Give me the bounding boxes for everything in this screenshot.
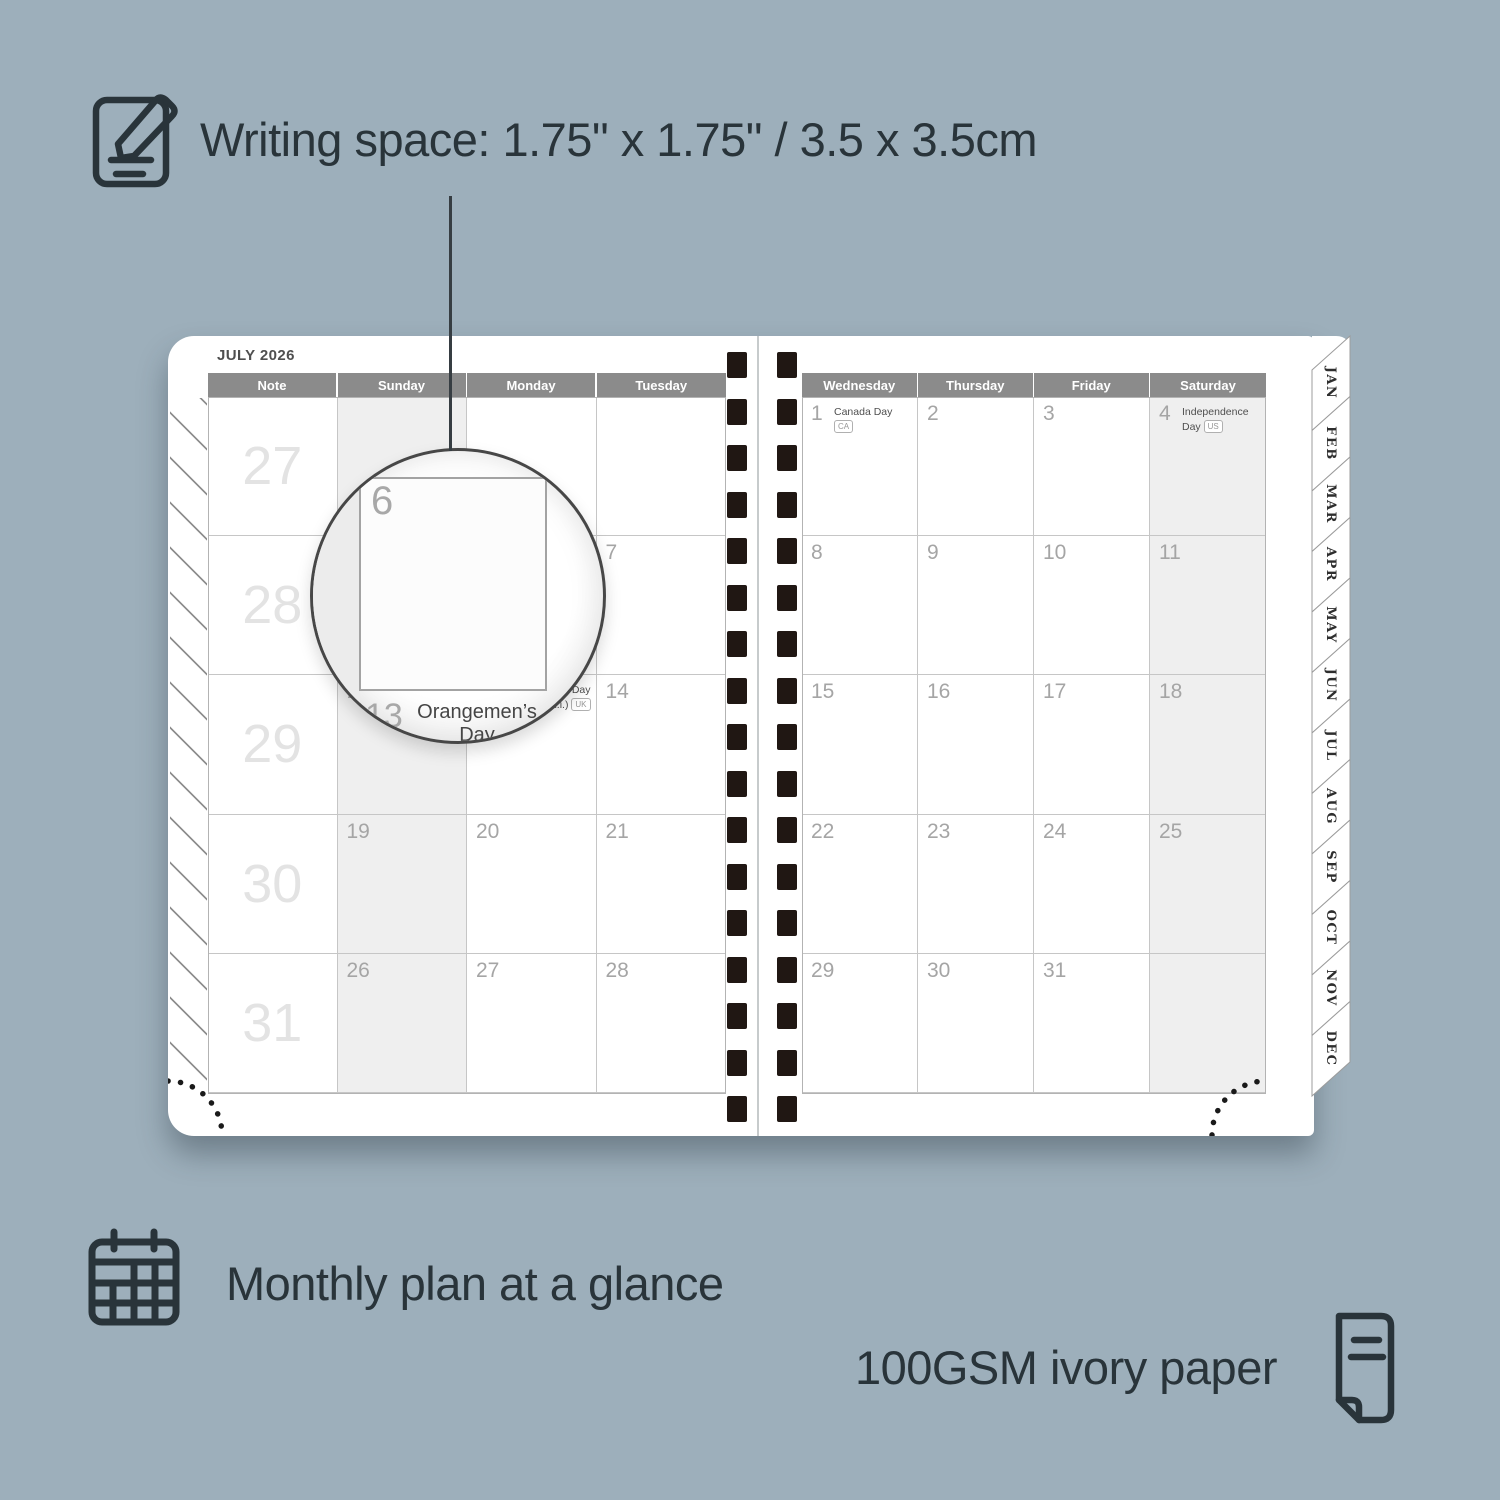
date-number-26: 26 xyxy=(347,959,370,983)
header-left-monday: Monday xyxy=(467,373,595,397)
month-tab-jul xyxy=(1312,699,1350,794)
binding-hole xyxy=(777,771,797,797)
binding-hole xyxy=(777,910,797,936)
binding-hole xyxy=(777,1003,797,1029)
month-tab-label-feb: FEB xyxy=(1323,426,1338,461)
day-cell-right-24: 24 xyxy=(1034,815,1150,954)
date-number-9: 9 xyxy=(927,541,939,565)
date-number-31: 31 xyxy=(1043,959,1066,983)
week-number-31: 31 xyxy=(242,992,302,1054)
month-tab-label-dec: DEC xyxy=(1323,1030,1338,1066)
month-tab-sep xyxy=(1312,820,1350,915)
header-right-saturday: Saturday xyxy=(1150,373,1266,397)
date-number-1: 1 xyxy=(811,402,823,426)
paper-sheet-icon xyxy=(1318,1308,1408,1428)
month-tab-label-mar: MAR xyxy=(1323,484,1338,524)
product-infographic: Writing space: 1.75" x 1.75" / 3.5 x 3.5… xyxy=(0,0,1500,1500)
magnified-day-cell: 6 xyxy=(359,477,547,691)
month-tab-label-nov: NOV xyxy=(1323,969,1338,1007)
monthly-plan-caption: Monthly plan at a glance xyxy=(226,1256,724,1312)
date-number-4: 4 xyxy=(1159,402,1171,426)
binding-hole xyxy=(777,864,797,890)
writing-space-caption: Writing space: 1.75" x 1.75" / 3.5 x 3.5… xyxy=(200,112,1037,168)
day-cell-right-11: 11 xyxy=(1150,536,1266,675)
month-tab-label-oct: OCT xyxy=(1323,910,1338,946)
date-number-24: 24 xyxy=(1043,820,1066,844)
day-cell-left-21: 21 xyxy=(597,815,727,954)
day-cell-right-25: 25 xyxy=(1150,815,1266,954)
holiday-country-badge: US xyxy=(1204,420,1223,433)
week-number-30: 30 xyxy=(242,853,302,915)
header-left-sunday: Sunday xyxy=(338,373,466,397)
page-edge-hatching xyxy=(170,398,207,1086)
binding-hole xyxy=(727,724,747,750)
binding-hole xyxy=(777,445,797,471)
month-tab-label-may: MAY xyxy=(1323,606,1338,644)
date-number-29: 29 xyxy=(811,959,834,983)
date-number-21: 21 xyxy=(606,820,629,844)
binding-hole xyxy=(777,585,797,611)
day-cell-left-7: 7 xyxy=(597,536,727,675)
binding-hole xyxy=(777,1050,797,1076)
day-cell-left-28: 28 xyxy=(597,954,727,1093)
date-number-16: 16 xyxy=(927,680,950,704)
month-tab-jan xyxy=(1312,336,1350,431)
day-cell-right-10: 10 xyxy=(1034,536,1150,675)
month-tab-feb xyxy=(1312,397,1350,492)
binding-hole xyxy=(727,538,747,564)
planner-spread: JULY 2026 JANFEBMARAPRMAYJUNJULAUGSEPOCT… xyxy=(168,336,1314,1136)
date-number-27: 27 xyxy=(476,959,499,983)
month-tab-label-jul: JUL xyxy=(1323,729,1338,761)
week-cell-31: 31 xyxy=(208,954,338,1093)
binding-hole xyxy=(727,445,747,471)
month-tab-dec xyxy=(1312,1002,1350,1097)
binding-hole xyxy=(777,538,797,564)
holiday-line1: Orangemen’s Day xyxy=(399,701,555,744)
month-tab-apr xyxy=(1312,518,1350,613)
day-cell-right-3: 3 xyxy=(1034,397,1150,536)
week-number-28: 28 xyxy=(242,574,302,636)
date-number-23: 23 xyxy=(927,820,950,844)
day-cell-right-9: 9 xyxy=(918,536,1034,675)
date-number-30: 30 xyxy=(927,959,950,983)
day-cell-right-8: 8 xyxy=(802,536,918,675)
day-cell-left-19: 19 xyxy=(338,815,468,954)
binding-hole xyxy=(727,957,747,983)
binding-hole xyxy=(777,1096,797,1122)
month-tab-may xyxy=(1312,578,1350,673)
date-number-2: 2 xyxy=(927,402,939,426)
binding-hole xyxy=(777,399,797,425)
day-cell-right-1: 1Canada Day CA xyxy=(802,397,918,536)
binding-hole xyxy=(727,817,747,843)
week-number-29: 29 xyxy=(242,713,302,775)
month-tab-label-apr: APR xyxy=(1323,546,1338,582)
binding-hole xyxy=(777,631,797,657)
magnifier-circle: 6 13 Orangemen’s Day (n.i.) UK xyxy=(310,448,606,744)
binding-hole xyxy=(727,1003,747,1029)
month-tab-mar xyxy=(1312,457,1350,552)
magnified-date-number: 6 xyxy=(371,479,393,524)
date-number-11: 11 xyxy=(1159,541,1181,565)
date-number-18: 18 xyxy=(1159,680,1182,704)
header-right-friday: Friday xyxy=(1034,373,1149,397)
day-cell-left-26: 26 xyxy=(338,954,468,1093)
day-cell-right-31: 31 xyxy=(1034,954,1150,1093)
page-gutter-line xyxy=(757,336,759,1136)
header-right-wednesday: Wednesday xyxy=(802,373,917,397)
day-cell-right-17: 17 xyxy=(1034,675,1150,814)
month-tab-oct xyxy=(1312,881,1350,976)
binding-hole xyxy=(727,678,747,704)
day-cell-right-29: 29 xyxy=(802,954,918,1093)
binding-hole xyxy=(777,817,797,843)
header-left-note: Note xyxy=(208,373,336,397)
day-cell-left-14: 14 xyxy=(597,675,727,814)
month-tab-nov xyxy=(1312,941,1350,1036)
date-number-19: 19 xyxy=(347,820,370,844)
magnified-date-13: 13 xyxy=(365,697,403,736)
paper-weight-caption: 100GSM ivory paper xyxy=(855,1340,1277,1396)
binding-hole xyxy=(727,864,747,890)
binding-hole xyxy=(777,352,797,378)
week-number-27: 27 xyxy=(242,435,302,497)
day-cell-right-2: 2 xyxy=(918,397,1034,536)
magnified-sunday-shading xyxy=(313,451,360,741)
holiday-country-badge: CA xyxy=(834,420,853,433)
date-number-8: 8 xyxy=(811,541,823,565)
holiday-label-independence: Independence Day US xyxy=(1182,406,1262,434)
date-number-10: 10 xyxy=(1043,541,1066,565)
month-tab-label-jan: JAN xyxy=(1323,366,1338,400)
binding-hole xyxy=(727,910,747,936)
planner-month-title: JULY 2026 xyxy=(217,347,295,364)
date-number-3: 3 xyxy=(1043,402,1055,426)
day-cell-right-15: 15 xyxy=(802,675,918,814)
binding-hole xyxy=(727,492,747,518)
binding-hole xyxy=(727,585,747,611)
binding-hole xyxy=(727,1050,747,1076)
day-cell-left-20: 20 xyxy=(467,815,597,954)
binding-hole xyxy=(727,771,747,797)
day-cell-right-r4c3 xyxy=(1150,954,1266,1093)
date-number-22: 22 xyxy=(811,820,834,844)
holiday-label-canada: Canada Day CA xyxy=(834,406,914,434)
date-number-25: 25 xyxy=(1159,820,1182,844)
month-tab-aug xyxy=(1312,760,1350,855)
day-cell-right-30: 30 xyxy=(918,954,1034,1093)
date-number-20: 20 xyxy=(476,820,499,844)
date-number-7: 7 xyxy=(606,541,618,565)
day-cell-right-18: 18 xyxy=(1150,675,1266,814)
week-cell-30: 30 xyxy=(208,815,338,954)
date-number-28: 28 xyxy=(606,959,629,983)
holiday-name: Canada Day xyxy=(834,406,892,418)
month-tab-label-sep: SEP xyxy=(1323,850,1338,884)
month-tab-label-jun: JUN xyxy=(1323,668,1338,703)
card-top-right-corner xyxy=(1312,336,1350,372)
binding-hole xyxy=(727,631,747,657)
day-cell-left-27: 27 xyxy=(467,954,597,1093)
date-number-15: 15 xyxy=(811,680,834,704)
binding-hole xyxy=(777,678,797,704)
calendar-grid-icon xyxy=(86,1228,182,1328)
date-number-17: 17 xyxy=(1043,680,1066,704)
pointer-line xyxy=(449,196,452,451)
binding-hole xyxy=(777,957,797,983)
binding-hole xyxy=(727,352,747,378)
holiday-country-badge: UK xyxy=(571,698,590,711)
magnified-holiday-label: Orangemen’s Day (n.i.) UK xyxy=(399,701,555,744)
month-tab-strip: JANFEBMARAPRMAYJUNJULAUGSEPOCTNOVDEC xyxy=(1310,336,1370,1136)
day-cell-left-r0c2 xyxy=(597,397,727,536)
month-tab-label-aug: AUG xyxy=(1323,787,1338,825)
day-cell-right-22: 22 xyxy=(802,815,918,954)
header-right-thursday: Thursday xyxy=(918,373,1033,397)
writing-pad-pencil-icon xyxy=(88,82,186,192)
binding-hole xyxy=(777,492,797,518)
binding-hole xyxy=(727,1096,747,1122)
header-left-tuesday: Tuesday xyxy=(597,373,727,397)
date-number-14: 14 xyxy=(606,680,629,704)
day-cell-right-16: 16 xyxy=(918,675,1034,814)
day-cell-right-4: 4Independence Day US xyxy=(1150,397,1266,536)
binding-hole xyxy=(727,399,747,425)
day-cell-right-23: 23 xyxy=(918,815,1034,954)
binding-hole xyxy=(777,724,797,750)
month-tab-jun xyxy=(1312,639,1350,734)
